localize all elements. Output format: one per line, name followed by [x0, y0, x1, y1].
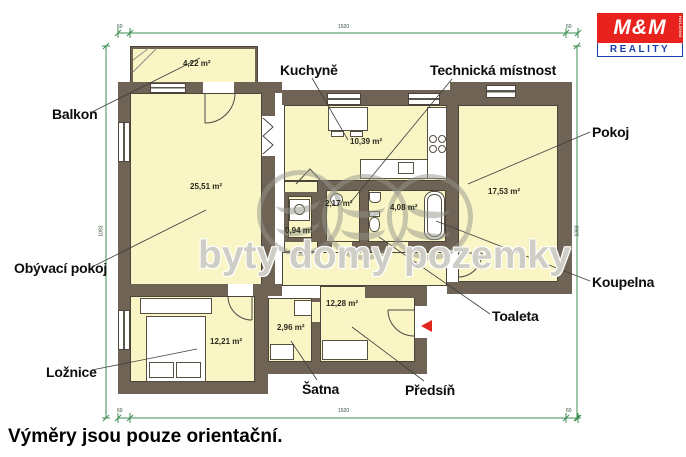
area-loznice: 12,21 m² [210, 337, 242, 346]
kitchen-counter-side [427, 107, 447, 179]
door-opening-entrance [415, 306, 427, 338]
door-opening-satna [312, 302, 320, 322]
area-satna: 2,96 m² [277, 323, 305, 332]
room-label-predsin: Předsíň [405, 382, 455, 398]
dim-right-side: 1093 [575, 225, 581, 236]
window-kitchen-2 [408, 93, 440, 105]
watermark-text: byty domy pozemky [198, 234, 668, 278]
wall-bottom-left [118, 382, 268, 394]
wardrobe [140, 298, 212, 314]
room-label-balkon: Balkon [52, 106, 97, 122]
area-closet: 0,94 m² [285, 226, 313, 235]
dim-bottom-center: 1520 [338, 408, 349, 414]
dim-top-left: 60 [117, 24, 123, 30]
area-pokoj: 17,53 m² [488, 187, 520, 196]
door-opening-bedroom [228, 284, 253, 296]
floor-plan: byty domy pozemky Balkon Kuchyně Technic… [0, 0, 686, 457]
logo-holding-text: HOLDING [678, 16, 682, 38]
room-label-toaleta: Toaleta [492, 308, 539, 324]
wall-top-left [118, 82, 282, 93]
wall-living-bottom-a [118, 284, 228, 296]
dim-top-right: 60 [566, 24, 572, 30]
dim-left-side: 1093 [99, 225, 105, 236]
window-kitchen-1 [327, 93, 361, 105]
door-opening-balcony [203, 82, 234, 93]
kitchen-table [328, 107, 368, 131]
area-predsin: 12,28 m² [326, 299, 358, 308]
room-label-loznice: Ložnice [46, 364, 97, 380]
dim-bottom-right: 60 [566, 408, 572, 414]
wall-living-bottom-b [253, 284, 282, 296]
logo-mm: M&M HOLDING [597, 13, 683, 43]
hall-cabinet [322, 340, 368, 360]
window-living-left [118, 122, 130, 162]
wall-vestibule-band [365, 286, 427, 298]
area-balkon: 4,22 m² [183, 59, 211, 68]
wall-bottom-vestibule [268, 362, 427, 374]
area-technicka: 2,17 m² [325, 199, 353, 208]
room-label-obyvaci-pokoj: Obývací pokoj [14, 260, 107, 276]
wall-bedroom-satna [255, 296, 268, 394]
dim-top-center: 1520 [338, 24, 349, 30]
room-label-technicka-mistnost: Technická místnost [430, 62, 556, 78]
area-obyvaci-pokoj: 25,51 m² [190, 182, 222, 191]
area-kuchyne: 10,39 m² [350, 137, 382, 146]
satna-shelf-2 [270, 344, 294, 360]
door-opening-living-kitchen [262, 116, 275, 156]
dim-bottom-left: 60 [117, 408, 123, 414]
room-label-koupelna: Koupelna [592, 274, 654, 290]
bed-pillow-1 [149, 362, 174, 378]
kitchen-sink [398, 162, 414, 174]
room-label-kuchyne: Kuchyně [280, 62, 338, 78]
kitchen-chair-1 [331, 131, 344, 137]
mm-reality-logo: M&M HOLDING REALITY [597, 13, 683, 57]
wall-pokoj-bottom [447, 282, 572, 294]
stove-burner-2 [438, 135, 446, 143]
stove-burner-1 [429, 135, 437, 143]
caption-note: Výměry jsou pouze orientační. [8, 426, 283, 448]
window-bedroom-left [118, 310, 130, 350]
room-label-pokoj: Pokoj [592, 124, 629, 140]
stove-burner-3 [429, 145, 437, 153]
window-pokoj-top [486, 85, 516, 98]
room-label-satna: Šatna [302, 381, 339, 397]
bed-pillow-2 [176, 362, 201, 378]
logo-reality-text: REALITY [597, 43, 683, 57]
stove-burner-4 [438, 145, 446, 153]
area-koupelna: 4,08 m² [390, 203, 418, 212]
window-living-top [150, 83, 186, 93]
satna-shelf-1 [294, 300, 312, 316]
